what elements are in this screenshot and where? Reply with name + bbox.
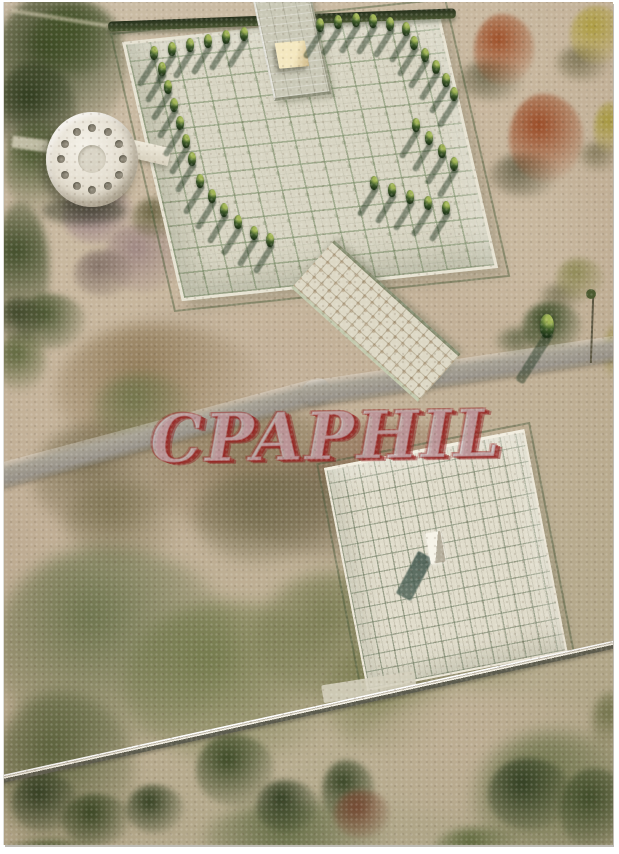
cypress-tree bbox=[406, 190, 414, 204]
cypress-tree bbox=[442, 201, 450, 215]
cypress-tree bbox=[388, 183, 396, 197]
cypress-tree-shadow bbox=[190, 43, 213, 75]
postcard: CPAPHIL bbox=[0, 0, 619, 854]
cypress-tree bbox=[540, 314, 554, 338]
cypress-tree-shadow bbox=[172, 47, 195, 79]
cypress-tree-shadow bbox=[428, 210, 451, 242]
cypress-tree-shadow bbox=[220, 224, 243, 256]
cypress-tree bbox=[421, 48, 429, 62]
watermark: CPAPHIL bbox=[149, 400, 510, 472]
cypress-tree bbox=[386, 17, 394, 31]
cypress-tree-shadow bbox=[411, 140, 434, 172]
cypress-tree bbox=[442, 73, 450, 87]
cypress-tree bbox=[164, 80, 172, 94]
cypress-tree bbox=[250, 226, 258, 240]
cypress-tree bbox=[150, 46, 158, 60]
cypress-tree bbox=[158, 62, 166, 76]
cypress-tree-shadow bbox=[194, 198, 217, 230]
cypress-tree bbox=[168, 42, 176, 56]
cypress-tree-shadow bbox=[374, 192, 397, 224]
cypress-tree bbox=[176, 116, 184, 130]
cypress-tree bbox=[196, 174, 204, 188]
cypress-tree bbox=[222, 30, 230, 44]
cypress-tree bbox=[412, 118, 420, 132]
cypress-tree bbox=[316, 18, 324, 32]
cypress-tree bbox=[334, 15, 342, 29]
cypress-tree-shadow bbox=[392, 199, 415, 231]
cypress-tree bbox=[369, 14, 377, 28]
cypress-tree bbox=[432, 60, 440, 74]
cypress-tree bbox=[425, 131, 433, 145]
cypress-tree-shadow bbox=[398, 127, 421, 159]
cypress-tree bbox=[170, 98, 178, 112]
cypress-tree-shadow bbox=[252, 242, 275, 274]
cypress-tree bbox=[424, 196, 432, 210]
cypress-tree-shadow bbox=[410, 205, 433, 237]
cypress-tree-shadow bbox=[206, 212, 229, 244]
cypress-tree bbox=[240, 27, 248, 41]
cypress-tree bbox=[186, 38, 194, 52]
cypress-tree bbox=[266, 233, 274, 247]
cypress-tree-shadow bbox=[236, 235, 259, 267]
cypress-tree bbox=[208, 189, 216, 203]
cypress-tree-shadow bbox=[436, 166, 459, 198]
cypress-tree-shadow bbox=[182, 183, 205, 215]
cypress-tree bbox=[352, 13, 360, 27]
cypress-tree bbox=[188, 152, 196, 166]
cypress-tree bbox=[450, 157, 458, 171]
cypress-tree bbox=[182, 134, 190, 148]
cypress-tree bbox=[220, 203, 228, 217]
cypress-tree bbox=[370, 176, 378, 190]
cypress-tree-shadow bbox=[515, 330, 554, 384]
cypress-tree bbox=[234, 215, 242, 229]
cypress-tree bbox=[450, 87, 458, 101]
cypress-tree bbox=[204, 34, 212, 48]
cypress-tree-shadow bbox=[356, 185, 379, 217]
cypress-tree bbox=[438, 144, 446, 158]
cypress-tree bbox=[402, 22, 410, 36]
aerial-photo: CPAPHIL bbox=[4, 2, 613, 845]
cypress-tree bbox=[410, 36, 418, 50]
